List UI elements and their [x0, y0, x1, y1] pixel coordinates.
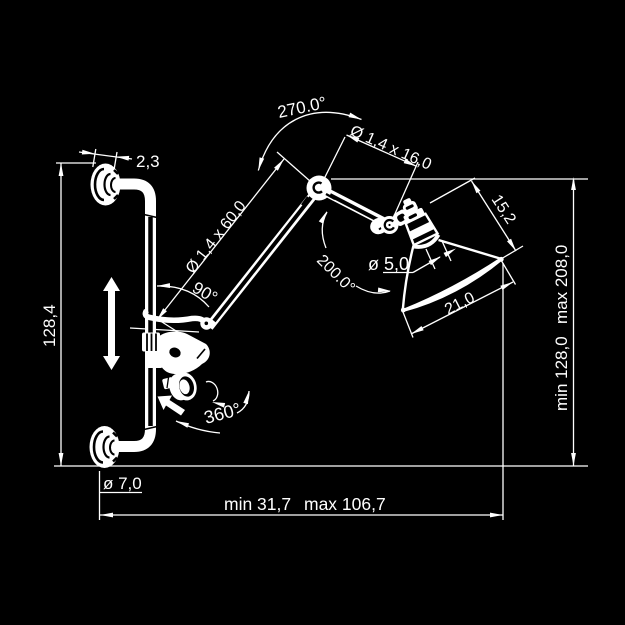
svg-text:max 106,7: max 106,7	[304, 494, 386, 514]
svg-text:max 208,0: max 208,0	[552, 245, 571, 324]
svg-text:min 128,0: min 128,0	[552, 336, 571, 411]
svg-text:min 31,7: min 31,7	[224, 494, 291, 514]
svg-text:128,4: 128,4	[40, 304, 59, 347]
svg-text:ø 7,0: ø 7,0	[103, 474, 142, 493]
svg-text:ø 5,0: ø 5,0	[368, 254, 409, 274]
svg-text:2,3: 2,3	[136, 152, 160, 171]
